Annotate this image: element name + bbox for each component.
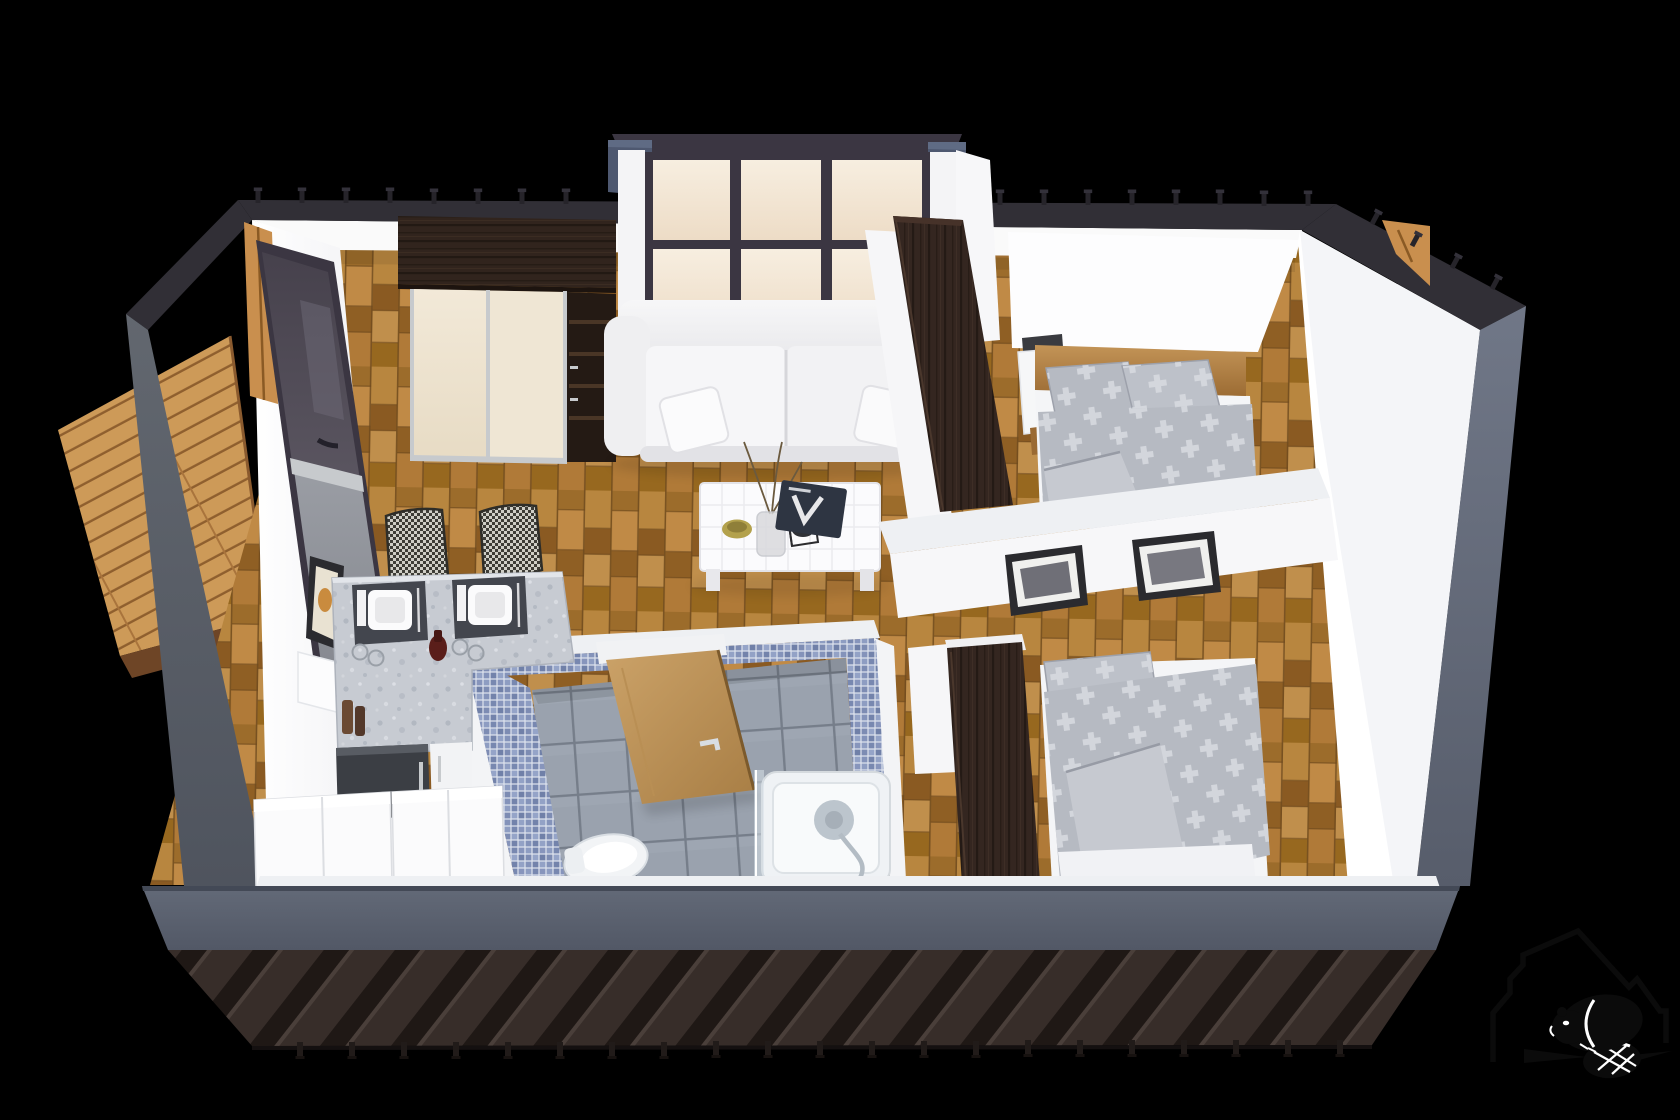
beaver-head: [1552, 1010, 1586, 1044]
table-leg: [860, 569, 874, 591]
plank-skirt: [168, 950, 1436, 1050]
napkin: [457, 585, 466, 621]
bedroom1-back-wall: [1008, 232, 1300, 352]
beaver-ear: [1557, 1007, 1567, 1017]
book: [775, 480, 847, 539]
bathtub: [754, 770, 890, 886]
cutlery: [518, 583, 519, 627]
bedroom-2: [908, 634, 1270, 886]
base-cabinets: [254, 786, 504, 886]
cutlery: [418, 588, 419, 632]
front-fascia: [142, 886, 1460, 950]
screenshot-canvas: Isometric 3D cutaway floor plan renderin…: [0, 0, 1680, 1120]
bed-2: [1040, 652, 1270, 886]
table-leg: [706, 569, 720, 591]
framed-picture-1: [1005, 545, 1088, 616]
framed-picture-2: [1132, 531, 1221, 601]
napkin: [357, 590, 366, 626]
floorplan-render: Isometric 3D cutaway floor plan renderin…: [0, 0, 1680, 1120]
beaver-eye: [1563, 1021, 1569, 1026]
sofa-armrest-left: [604, 316, 650, 456]
wardrobe-living: [398, 216, 616, 464]
